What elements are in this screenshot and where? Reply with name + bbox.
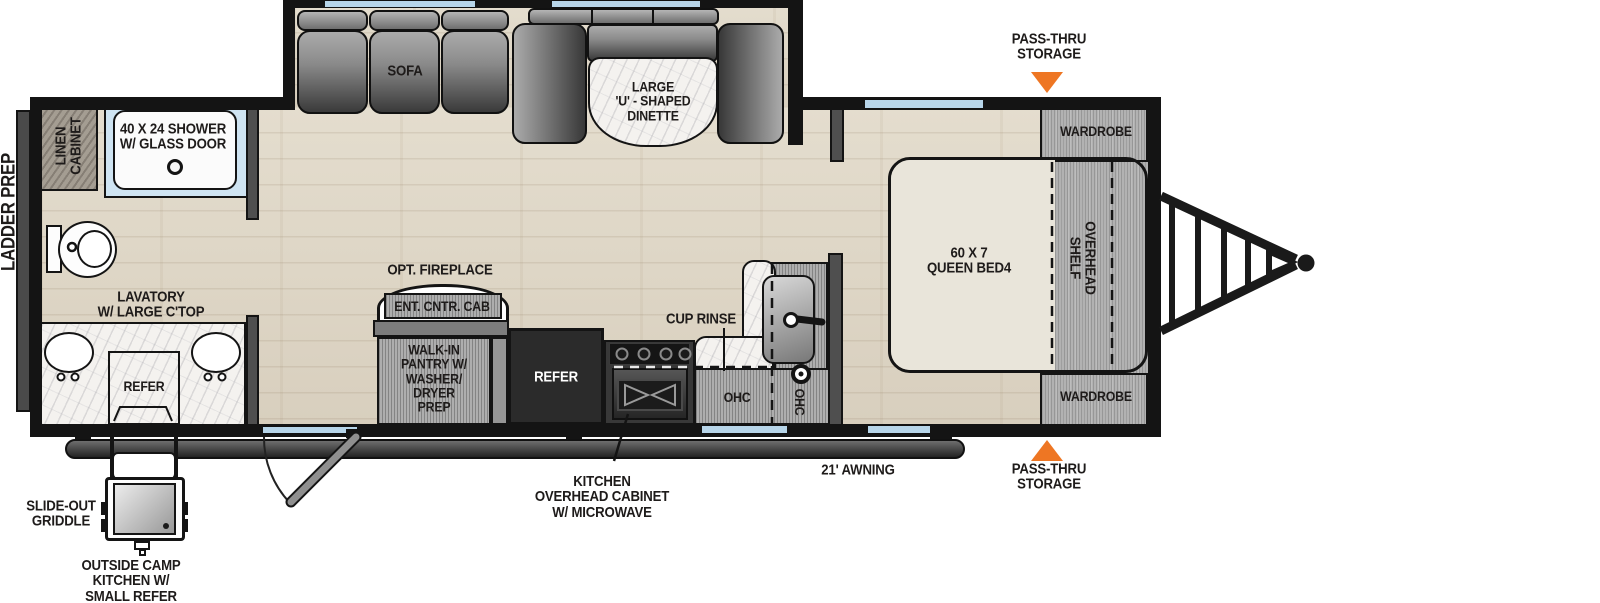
overhead-shelf-label: OVERHEAD SHELF [1067,221,1098,294]
floor-plan: LADDER PREP LINEN CABINET 40 X 24 SHOWER… [0,0,1600,603]
pass-thru-arrow-up-icon [1031,440,1063,461]
lavatory-label: LAVATORY W/ LARGE C'TOP [98,290,205,321]
bedroom-wall-lower [828,253,843,427]
opt-fireplace-label: OPT. FIREPLACE [387,262,492,277]
bedroom-side-window [868,425,930,434]
lavatory-sink-left [44,332,94,373]
main-refer-label: REFER [534,369,578,384]
cup-rinse-label: CUP RINSE [666,311,736,326]
bath-wall-lower [246,315,259,427]
dinette-bench-divider [591,9,593,24]
dinette-window [552,0,700,8]
cooktop [609,343,690,365]
awning-label: 21' AWNING [821,462,895,477]
outside-camp-kitchen-label: OUTSIDE CAMP KITCHEN W/ SMALL REFER [81,558,180,603]
ent-center-base-bar [373,320,509,337]
sofa-seat-cushion [441,30,509,114]
slideout-wall-left [283,0,295,108]
wardrobe-bottom-label: WARDROBE [1060,389,1132,403]
griddle-stem-foot [139,549,146,556]
sofa-window [325,0,475,8]
sofa-back-cushion [297,10,368,31]
wardrobe-top-label: WARDROBE [1060,124,1132,138]
pass-thru-arrow-down-icon [1031,72,1063,93]
entry-door-glass [263,426,357,434]
slide-out-griddle-label: SLIDE-OUT GRIDDLE [26,499,96,530]
pass-thru-top-label: PASS-THRU STORAGE [1012,32,1086,63]
trailer-tongue [1161,196,1315,331]
pass-thru-bottom-label: PASS-THRU STORAGE [1012,462,1086,493]
ohc-label: OHC [724,390,751,404]
rear-wall [30,97,42,437]
ladder-prep-label: LADDER PREP [0,153,19,271]
awning-bar [65,439,965,459]
linen-cabinet-label: LINEN CABINET [54,117,85,174]
bedroom-window [865,99,983,109]
griddle-slide-tunnel [112,452,176,480]
sofa-seat-cushion [297,30,368,114]
kitchen-sink [762,275,815,364]
kitchen-window [702,425,787,434]
slideout-wall-right [788,0,803,145]
griddle-surface [113,483,176,535]
sofa-label: SOFA [387,63,422,78]
hitch-ball-icon [1298,255,1315,272]
dinette-bench-divider [652,9,654,24]
bottom-wall [30,424,1161,437]
dinette-right-bench [717,23,784,144]
queen-bed-label: 60 X 7 QUEEN BED4 [927,246,1011,277]
dinette-label: LARGE 'U' - SHAPED DINETTE [616,80,691,123]
dinette-left-bench [512,23,587,144]
front-wall [1148,97,1161,437]
hitch-coupler [1266,246,1298,280]
top-wall-rear [30,97,295,110]
bath-wall-upper [246,102,259,220]
lavatory-sink-right [191,332,241,373]
pantry-label: WALK-IN PANTRY W/ WASHER/ DRYER PREP [401,342,467,413]
sofa-back-cushion [441,10,509,31]
pantry-side-cabinet [491,337,508,425]
ent-cntr-cab-label: ENT. CNTR. CAB [394,299,489,313]
oven-window [617,379,683,411]
outside-refer-label: REFER [124,379,165,393]
ohc-side-label: OHC [793,389,807,416]
shower-label: 40 X 24 SHOWER W/ GLASS DOOR [120,122,226,153]
toilet-bowl-inner [77,230,112,268]
sofa-back-cushion [369,10,440,31]
kitchen-ohc-label: KITCHEN OVERHEAD CABINET W/ MICROWAVE [535,474,669,520]
